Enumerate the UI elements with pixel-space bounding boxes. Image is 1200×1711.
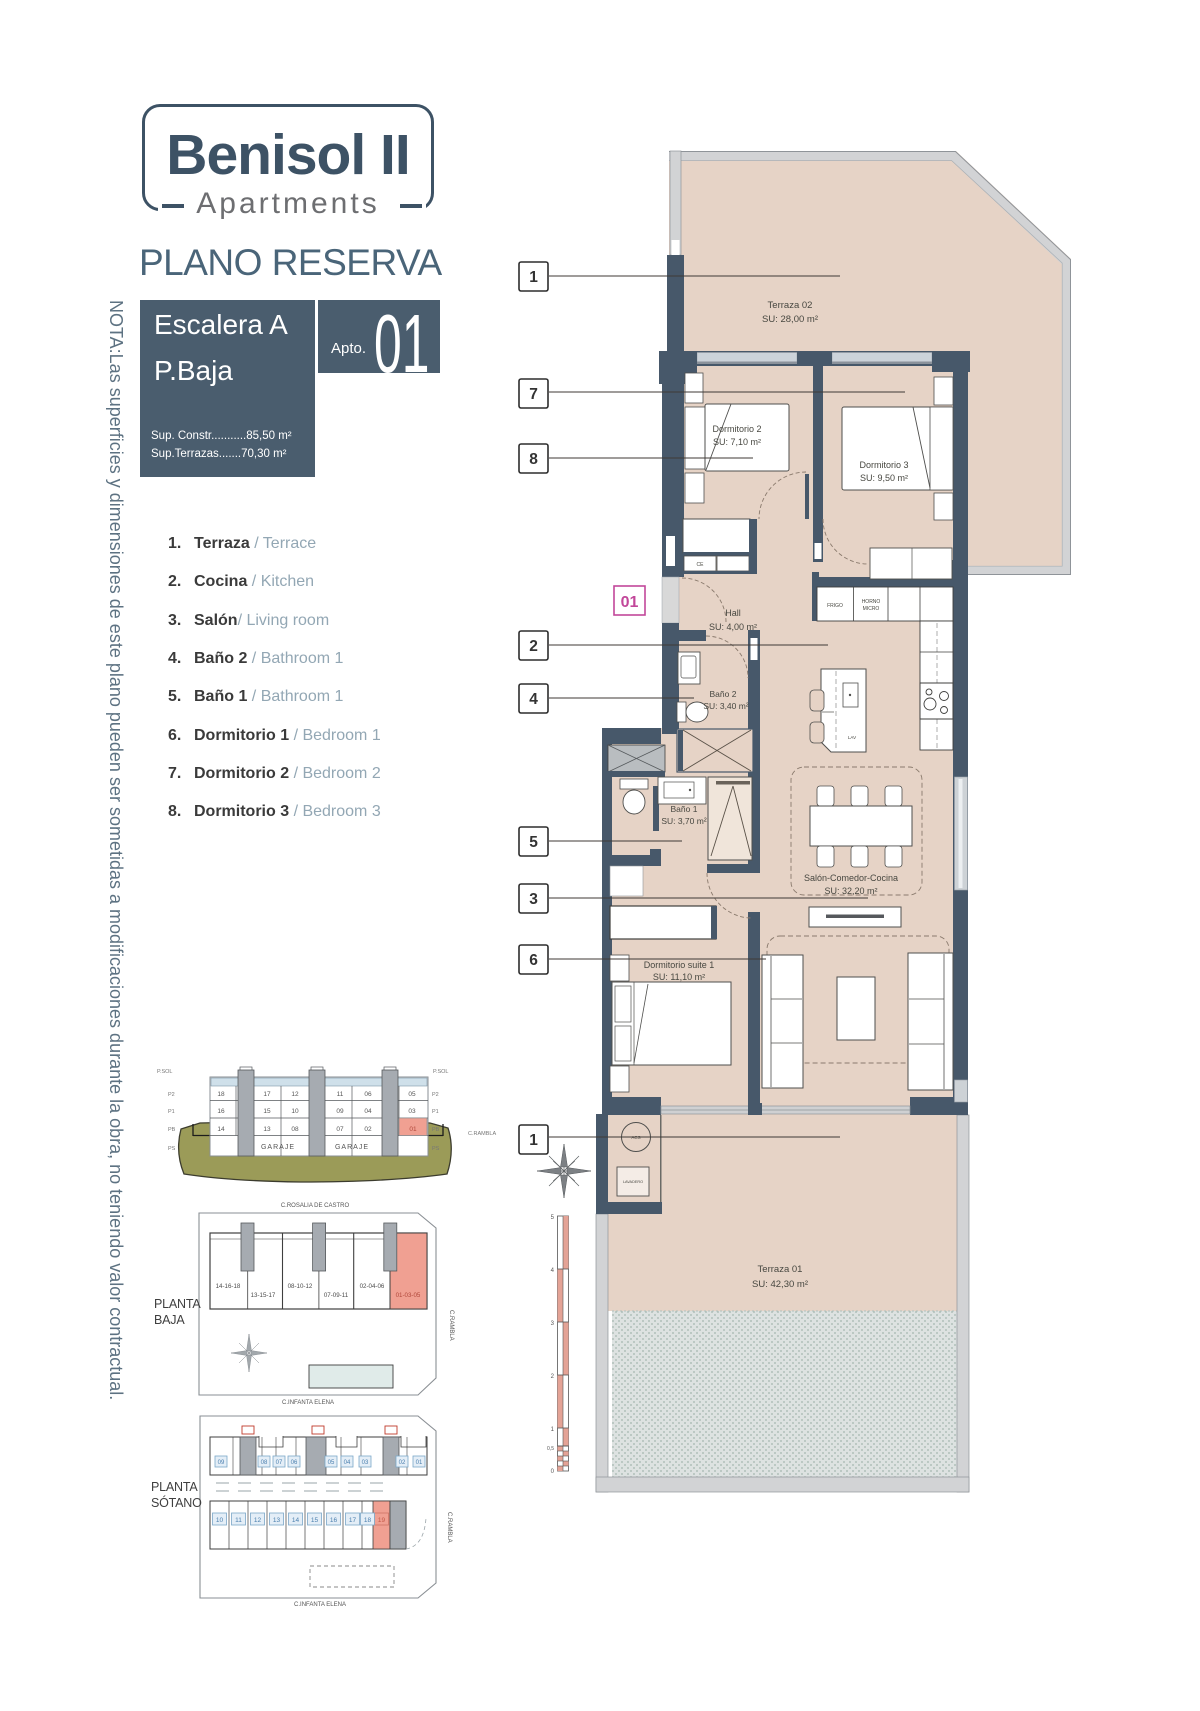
- svg-text:18: 18: [364, 1517, 372, 1524]
- svg-text:Terraza 02: Terraza 02: [768, 300, 813, 311]
- svg-text:2: 2: [529, 638, 538, 655]
- svg-text:14: 14: [217, 1126, 225, 1133]
- svg-text:GARAJE: GARAJE: [261, 1144, 295, 1151]
- svg-text:Dormitorio 3: Dormitorio 3: [859, 460, 908, 470]
- svg-text:09: 09: [218, 1460, 225, 1466]
- svg-text:Dormitorio 2: Dormitorio 2: [712, 424, 761, 434]
- svg-text:10: 10: [291, 1108, 299, 1115]
- svg-text:12: 12: [291, 1091, 299, 1098]
- svg-text:05: 05: [328, 1460, 335, 1466]
- svg-text:P.SOL: P.SOL: [157, 1069, 173, 1075]
- svg-text:4: 4: [529, 691, 538, 708]
- svg-text:17: 17: [263, 1091, 271, 1098]
- svg-text:SU: 32,20 m²: SU: 32,20 m²: [824, 886, 877, 896]
- svg-text:P1: P1: [432, 1109, 439, 1115]
- svg-text:SU: 3,40 m²: SU: 3,40 m²: [703, 701, 749, 711]
- svg-text:SU: 3,70 m²: SU: 3,70 m²: [661, 816, 707, 826]
- svg-text:0: 0: [551, 1469, 555, 1475]
- svg-text:3: 3: [551, 1321, 555, 1327]
- svg-text:P.SOL: P.SOL: [433, 1069, 449, 1075]
- svg-text:SU: 7,10 m²: SU: 7,10 m²: [713, 437, 761, 447]
- svg-text:C.RAMBLA: C.RAMBLA: [446, 1512, 452, 1543]
- svg-text:0,5: 0,5: [547, 1446, 554, 1452]
- svg-text:LAV: LAV: [848, 735, 856, 740]
- svg-text:PS: PS: [168, 1146, 176, 1152]
- svg-text:04: 04: [344, 1460, 351, 1466]
- svg-text:12: 12: [254, 1517, 262, 1524]
- svg-text:08: 08: [291, 1126, 299, 1133]
- svg-text:09: 09: [336, 1108, 344, 1115]
- svg-text:Baño 1: Baño 1: [671, 804, 698, 814]
- svg-text:03: 03: [408, 1108, 416, 1115]
- svg-text:Terraza 01: Terraza 01: [758, 1264, 803, 1275]
- svg-text:SÓTANO: SÓTANO: [151, 1495, 202, 1510]
- svg-text:SU: 11,10 m²: SU: 11,10 m²: [653, 972, 705, 982]
- svg-text:P2: P2: [168, 1092, 175, 1098]
- svg-text:C.RAMBLA: C.RAMBLA: [448, 1310, 454, 1341]
- svg-text:1: 1: [551, 1427, 555, 1433]
- svg-text:C.INFANTA ELENA: C.INFANTA ELENA: [294, 1602, 346, 1608]
- svg-text:14-16-18: 14-16-18: [216, 1283, 241, 1290]
- svg-text:C.RAMBLA: C.RAMBLA: [468, 1131, 496, 1137]
- svg-text:SU: 28,00 m²: SU: 28,00 m²: [762, 314, 818, 325]
- svg-text:LAVADERO: LAVADERO: [623, 1180, 643, 1184]
- svg-text:15: 15: [263, 1108, 271, 1115]
- svg-text:06: 06: [291, 1460, 298, 1466]
- svg-text:07: 07: [336, 1126, 344, 1133]
- svg-text:05: 05: [408, 1091, 416, 1098]
- svg-text:BAJA: BAJA: [154, 1313, 185, 1327]
- svg-text:17: 17: [349, 1517, 357, 1524]
- svg-text:Salón-Comedor-Cocina: Salón-Comedor-Cocina: [804, 873, 898, 883]
- svg-text:06: 06: [364, 1091, 372, 1098]
- svg-text:13: 13: [273, 1517, 281, 1524]
- svg-text:Dormitorio suite 1: Dormitorio suite 1: [644, 960, 715, 970]
- svg-text:02-04-06: 02-04-06: [360, 1283, 385, 1290]
- svg-text:08-10-12: 08-10-12: [288, 1283, 313, 1290]
- svg-text:16: 16: [217, 1108, 225, 1115]
- svg-text:4: 4: [551, 1268, 555, 1274]
- svg-text:Baño 2: Baño 2: [710, 689, 737, 699]
- svg-text:01: 01: [409, 1126, 417, 1133]
- svg-text:1: 1: [529, 269, 538, 286]
- svg-text:C.ROSALIA DE CASTRO: C.ROSALIA DE CASTRO: [281, 1203, 350, 1209]
- svg-text:16: 16: [330, 1517, 338, 1524]
- svg-text:3: 3: [529, 891, 538, 908]
- svg-text:08: 08: [261, 1460, 268, 1466]
- svg-text:13-15-17: 13-15-17: [251, 1292, 276, 1299]
- svg-text:01: 01: [416, 1460, 423, 1466]
- svg-text:02: 02: [364, 1126, 372, 1133]
- svg-text:PLANTA: PLANTA: [151, 1480, 198, 1494]
- svg-text:6: 6: [529, 952, 538, 969]
- svg-text:03: 03: [362, 1460, 369, 1466]
- svg-text:GARAJE: GARAJE: [335, 1144, 369, 1151]
- svg-text:5: 5: [529, 834, 538, 851]
- svg-text:04: 04: [364, 1108, 372, 1115]
- svg-text:C.INFANTA ELENA: C.INFANTA ELENA: [282, 1400, 334, 1406]
- svg-text:13: 13: [263, 1126, 271, 1133]
- svg-text:02: 02: [399, 1460, 406, 1466]
- svg-text:PS: PS: [432, 1146, 440, 1152]
- svg-text:01: 01: [621, 594, 639, 611]
- svg-text:18: 18: [217, 1091, 225, 1098]
- svg-text:1: 1: [529, 1132, 538, 1149]
- svg-text:SU: 9,50 m²: SU: 9,50 m²: [860, 473, 908, 483]
- svg-text:2: 2: [551, 1374, 555, 1380]
- svg-text:07: 07: [276, 1460, 283, 1466]
- svg-text:Hall: Hall: [725, 608, 741, 618]
- svg-text:11: 11: [235, 1517, 242, 1524]
- svg-text:FRIGO: FRIGO: [827, 603, 843, 609]
- svg-text:5: 5: [551, 1215, 555, 1221]
- svg-text:01-03-05: 01-03-05: [396, 1292, 421, 1299]
- svg-text:P1: P1: [168, 1109, 175, 1115]
- svg-text:8: 8: [529, 451, 538, 468]
- svg-text:PB: PB: [168, 1127, 176, 1133]
- svg-text:15: 15: [311, 1517, 319, 1524]
- svg-text:11: 11: [337, 1091, 344, 1098]
- svg-text:CE: CE: [697, 562, 705, 568]
- svg-text:14: 14: [292, 1517, 300, 1524]
- svg-text:19: 19: [378, 1517, 386, 1524]
- svg-text:SU: 4,00 m²: SU: 4,00 m²: [709, 622, 757, 632]
- svg-text:SU: 42,30 m²: SU: 42,30 m²: [752, 1279, 808, 1290]
- svg-text:PB: PB: [432, 1127, 440, 1133]
- svg-text:10: 10: [216, 1517, 224, 1524]
- svg-text:7: 7: [529, 386, 538, 403]
- svg-text:P2: P2: [432, 1092, 439, 1098]
- svg-text:HORNO: HORNO: [862, 599, 881, 605]
- svg-text:PLANTA: PLANTA: [154, 1297, 201, 1311]
- svg-text:07-09-11: 07-09-11: [324, 1292, 349, 1299]
- svg-text:MICRO: MICRO: [863, 606, 880, 612]
